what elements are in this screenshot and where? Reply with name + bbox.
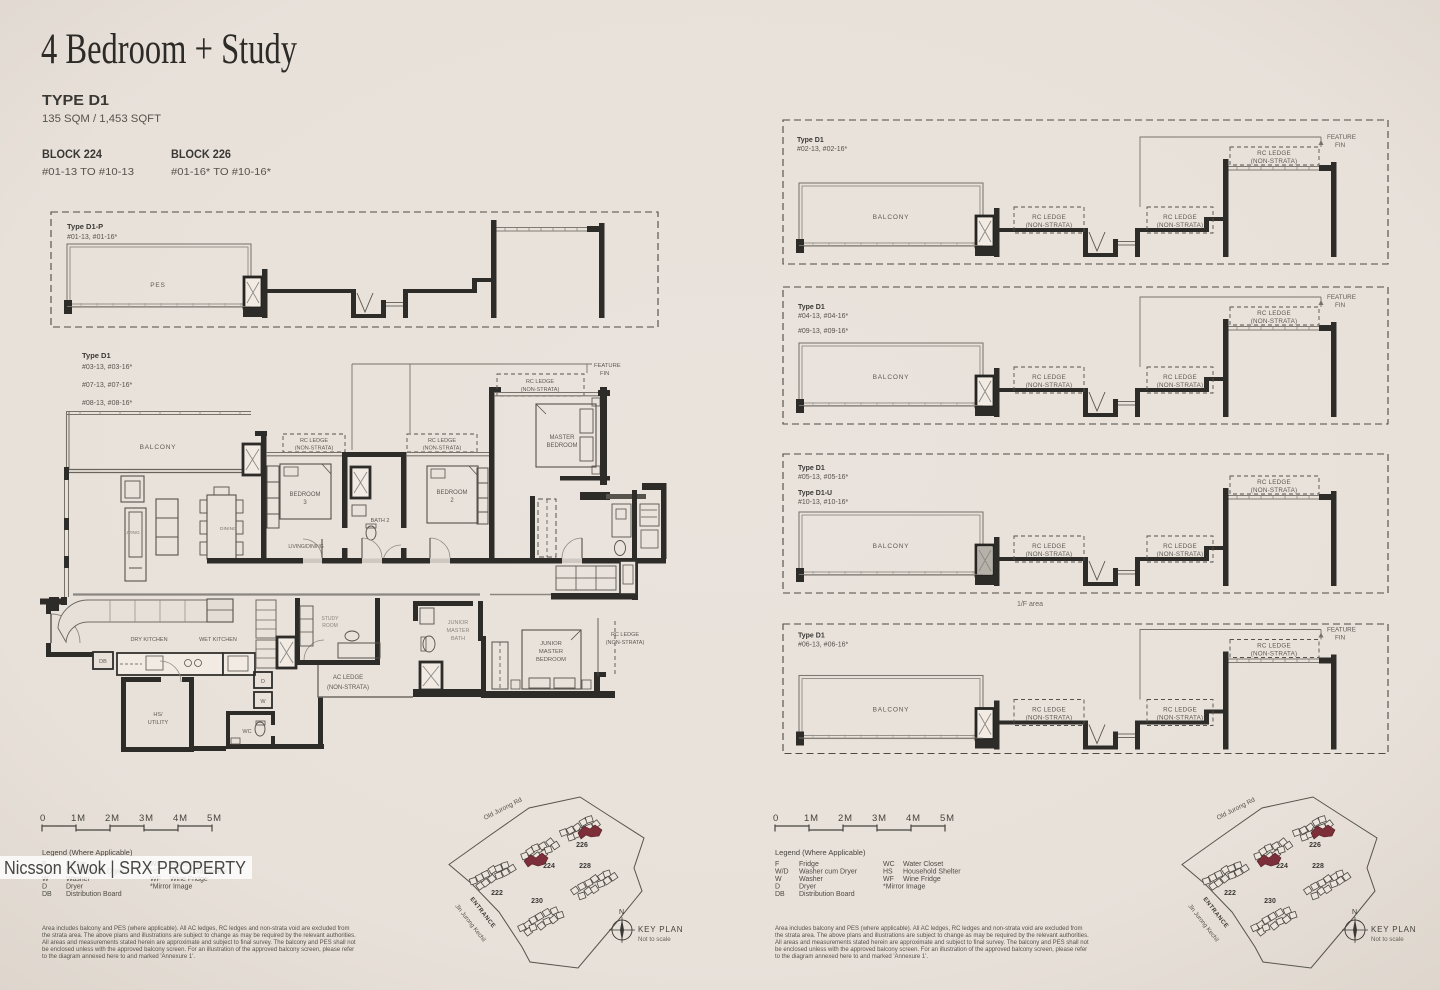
svg-text:#10-13, #10-16*: #10-13, #10-16* bbox=[798, 499, 848, 506]
svg-text:3M: 3M bbox=[872, 813, 887, 824]
svg-text:be enclosed unless with the ap: be enclosed unless with the approved bal… bbox=[775, 947, 1087, 953]
svg-text:HS/: HS/ bbox=[153, 712, 163, 718]
svg-text:STUDY: STUDY bbox=[322, 616, 340, 622]
svg-text:PES: PES bbox=[150, 282, 165, 289]
svg-text:ROOM: ROOM bbox=[322, 623, 338, 629]
svg-text:BATH 2: BATH 2 bbox=[371, 518, 390, 524]
svg-text:DB: DB bbox=[99, 659, 107, 665]
svg-text:WC: WC bbox=[883, 861, 895, 868]
svg-text:DB: DB bbox=[42, 891, 52, 898]
svg-text:4M: 4M bbox=[906, 813, 921, 824]
svg-text:RC LEDGE: RC LEDGE bbox=[300, 438, 328, 444]
svg-text:JUNIOR: JUNIOR bbox=[448, 620, 469, 626]
svg-text:Wine Fridge: Wine Fridge bbox=[903, 876, 941, 883]
svg-text:#06-13, #06-16*: #06-13, #06-16* bbox=[798, 642, 848, 649]
svg-text:MASTER: MASTER bbox=[447, 628, 470, 634]
svg-text:JUNIOR: JUNIOR bbox=[540, 641, 562, 647]
svg-text:BALCONY: BALCONY bbox=[873, 374, 910, 381]
svg-text:BEDROOM: BEDROOM bbox=[289, 492, 320, 498]
svg-text:(NON-STRATA): (NON-STRATA) bbox=[606, 640, 645, 646]
svg-text:#01-13, #01-16*: #01-13, #01-16* bbox=[67, 234, 117, 241]
svg-text:*Mirror Image: *Mirror Image bbox=[150, 884, 193, 891]
svg-text:the strata area. The above pla: the strata area. The above plans and ill… bbox=[42, 933, 356, 939]
svg-text:3M: 3M bbox=[139, 813, 154, 824]
svg-text:#08-13, #08-16*: #08-13, #08-16* bbox=[82, 400, 132, 407]
svg-text:(NON-STRATA): (NON-STRATA) bbox=[295, 446, 334, 452]
svg-text:226: 226 bbox=[1309, 842, 1321, 849]
svg-text:2M: 2M bbox=[105, 813, 120, 824]
svg-text:5M: 5M bbox=[207, 813, 222, 824]
svg-text:MASTER: MASTER bbox=[539, 649, 563, 655]
svg-text:Legend (Where Applicable): Legend (Where Applicable) bbox=[775, 848, 866, 857]
svg-text:BLOCK 224: BLOCK 224 bbox=[42, 149, 103, 161]
svg-text:Type D1: Type D1 bbox=[82, 351, 111, 360]
svg-text:BLOCK 226: BLOCK 226 bbox=[171, 149, 231, 161]
svg-text:WF: WF bbox=[883, 876, 894, 883]
svg-text:Legend (Where Applicable): Legend (Where Applicable) bbox=[42, 848, 133, 857]
svg-text:BATH: BATH bbox=[451, 636, 465, 642]
svg-text:Type D1-P: Type D1-P bbox=[67, 222, 103, 231]
svg-text:to the diagram annexed here to: to the diagram annexed here to and marke… bbox=[775, 954, 928, 960]
svg-text:*Mirror Image: *Mirror Image bbox=[883, 884, 926, 891]
svg-text:1/F area: 1/F area bbox=[1017, 601, 1043, 608]
svg-text:D: D bbox=[775, 884, 780, 891]
svg-text:Type D1: Type D1 bbox=[798, 633, 825, 640]
svg-text:RC LEDGE: RC LEDGE bbox=[526, 379, 554, 385]
svg-text:UTILITY: UTILITY bbox=[148, 720, 169, 726]
svg-text:Dryer: Dryer bbox=[799, 884, 817, 891]
svg-text:WET KITCHEN: WET KITCHEN bbox=[199, 637, 237, 643]
svg-text:the strata area. The above pla: the strata area. The above plans and ill… bbox=[775, 933, 1089, 939]
svg-text:Not to scale: Not to scale bbox=[1371, 936, 1404, 943]
svg-text:W: W bbox=[775, 876, 782, 883]
svg-text:DRY KITCHEN: DRY KITCHEN bbox=[130, 637, 167, 643]
svg-text:0: 0 bbox=[773, 813, 779, 824]
svg-text:135 SQM / 1,453 SQFT: 135 SQM / 1,453 SQFT bbox=[42, 113, 161, 125]
svg-text:N: N bbox=[1352, 909, 1357, 916]
svg-text:Dryer: Dryer bbox=[66, 884, 84, 891]
svg-text:1M: 1M bbox=[71, 813, 86, 824]
svg-text:230: 230 bbox=[1264, 898, 1276, 905]
svg-text:#01-16* TO #10-16*: #01-16* TO #10-16* bbox=[171, 166, 271, 178]
svg-text:BALCONY: BALCONY bbox=[873, 214, 910, 221]
svg-text:Distribution Board: Distribution Board bbox=[66, 891, 122, 898]
svg-text:BEDROOM: BEDROOM bbox=[536, 657, 566, 663]
svg-text:#09-13, #09-16*: #09-13, #09-16* bbox=[798, 328, 848, 335]
svg-text:#05-13, #05-16*: #05-13, #05-16* bbox=[798, 474, 848, 481]
svg-text:Water Closet: Water Closet bbox=[903, 861, 943, 868]
svg-text:Distribution Board: Distribution Board bbox=[799, 891, 855, 898]
svg-text:(NON-STRATA): (NON-STRATA) bbox=[327, 685, 369, 691]
svg-text:1M: 1M bbox=[804, 813, 819, 824]
svg-text:4M: 4M bbox=[173, 813, 188, 824]
svg-text:Washer cum Dryer: Washer cum Dryer bbox=[799, 869, 858, 876]
svg-text:Fridge: Fridge bbox=[799, 861, 819, 868]
svg-text:4 Bedroom + Study: 4 Bedroom + Study bbox=[41, 26, 297, 73]
svg-text:Household Shelter: Household Shelter bbox=[903, 869, 961, 876]
svg-text:F: F bbox=[775, 861, 779, 868]
svg-text:AC LEDGE: AC LEDGE bbox=[333, 675, 363, 681]
svg-text:RC LEDGE: RC LEDGE bbox=[611, 632, 639, 638]
svg-text:#07-13, #07-16*: #07-13, #07-16* bbox=[82, 382, 132, 389]
svg-text:224: 224 bbox=[1276, 863, 1288, 870]
svg-text:MASTER: MASTER bbox=[549, 435, 575, 441]
svg-text:be enclosed unless with the ap: be enclosed unless with the approved bal… bbox=[42, 947, 354, 953]
svg-text:BALCONY: BALCONY bbox=[873, 707, 910, 714]
svg-text:to the diagram annexed here to: to the diagram annexed here to and marke… bbox=[42, 954, 195, 960]
svg-text:BALCONY: BALCONY bbox=[873, 543, 910, 550]
svg-text:0: 0 bbox=[40, 813, 46, 824]
svg-text:Type D1: Type D1 bbox=[798, 465, 825, 472]
svg-text:Area includes balcony and PES: Area includes balcony and PES (where app… bbox=[42, 926, 350, 932]
svg-text:Washer: Washer bbox=[799, 876, 824, 883]
svg-text:BEDROOM: BEDROOM bbox=[546, 443, 577, 449]
svg-text:W/D: W/D bbox=[775, 869, 789, 876]
svg-text:DB: DB bbox=[775, 891, 785, 898]
svg-text:All areas and measurements sta: All areas and measurements stated herein… bbox=[775, 940, 1089, 946]
svg-text:All areas and measurements sta: All areas and measurements stated herein… bbox=[42, 940, 356, 946]
svg-text:#01-13 TO #10-13: #01-13 TO #10-13 bbox=[42, 166, 134, 178]
svg-text:Area includes balcony and PES: Area includes balcony and PES (where app… bbox=[775, 926, 1083, 932]
svg-text:Type D1: Type D1 bbox=[798, 304, 825, 311]
svg-text:#03-13, #03-16*: #03-13, #03-16* bbox=[82, 364, 132, 371]
svg-text:228: 228 bbox=[1312, 863, 1324, 870]
svg-text:D: D bbox=[261, 679, 265, 685]
svg-text:Type D1-U: Type D1-U bbox=[798, 490, 832, 497]
svg-text:WC: WC bbox=[242, 729, 251, 735]
svg-text:BALCONY: BALCONY bbox=[140, 444, 177, 451]
svg-text:Type D1: Type D1 bbox=[797, 137, 824, 144]
svg-text:2M: 2M bbox=[838, 813, 853, 824]
svg-text:222: 222 bbox=[1224, 890, 1236, 897]
svg-text:BEDROOM: BEDROOM bbox=[436, 490, 467, 496]
svg-text:W: W bbox=[260, 699, 266, 705]
svg-text:#04-13, #04-16*: #04-13, #04-16* bbox=[798, 313, 848, 320]
svg-text:FIN: FIN bbox=[600, 371, 609, 377]
svg-text:KEY PLAN: KEY PLAN bbox=[1371, 925, 1416, 934]
svg-text:Nicsson Kwok | SRX PROPERTY: Nicsson Kwok | SRX PROPERTY bbox=[4, 858, 246, 878]
svg-text:(NON-STRATA): (NON-STRATA) bbox=[423, 446, 462, 452]
svg-text:FEATURE: FEATURE bbox=[594, 363, 621, 369]
svg-text:RC LEDGE: RC LEDGE bbox=[428, 438, 456, 444]
svg-text:HS: HS bbox=[883, 869, 893, 876]
svg-text:LIVING: LIVING bbox=[124, 530, 140, 536]
svg-text:5M: 5M bbox=[940, 813, 955, 824]
svg-text:#02-13, #02-16*: #02-13, #02-16* bbox=[797, 146, 847, 153]
svg-text:DINING: DINING bbox=[220, 526, 237, 532]
svg-text:TYPE D1: TYPE D1 bbox=[42, 92, 109, 109]
svg-text:D: D bbox=[42, 884, 47, 891]
